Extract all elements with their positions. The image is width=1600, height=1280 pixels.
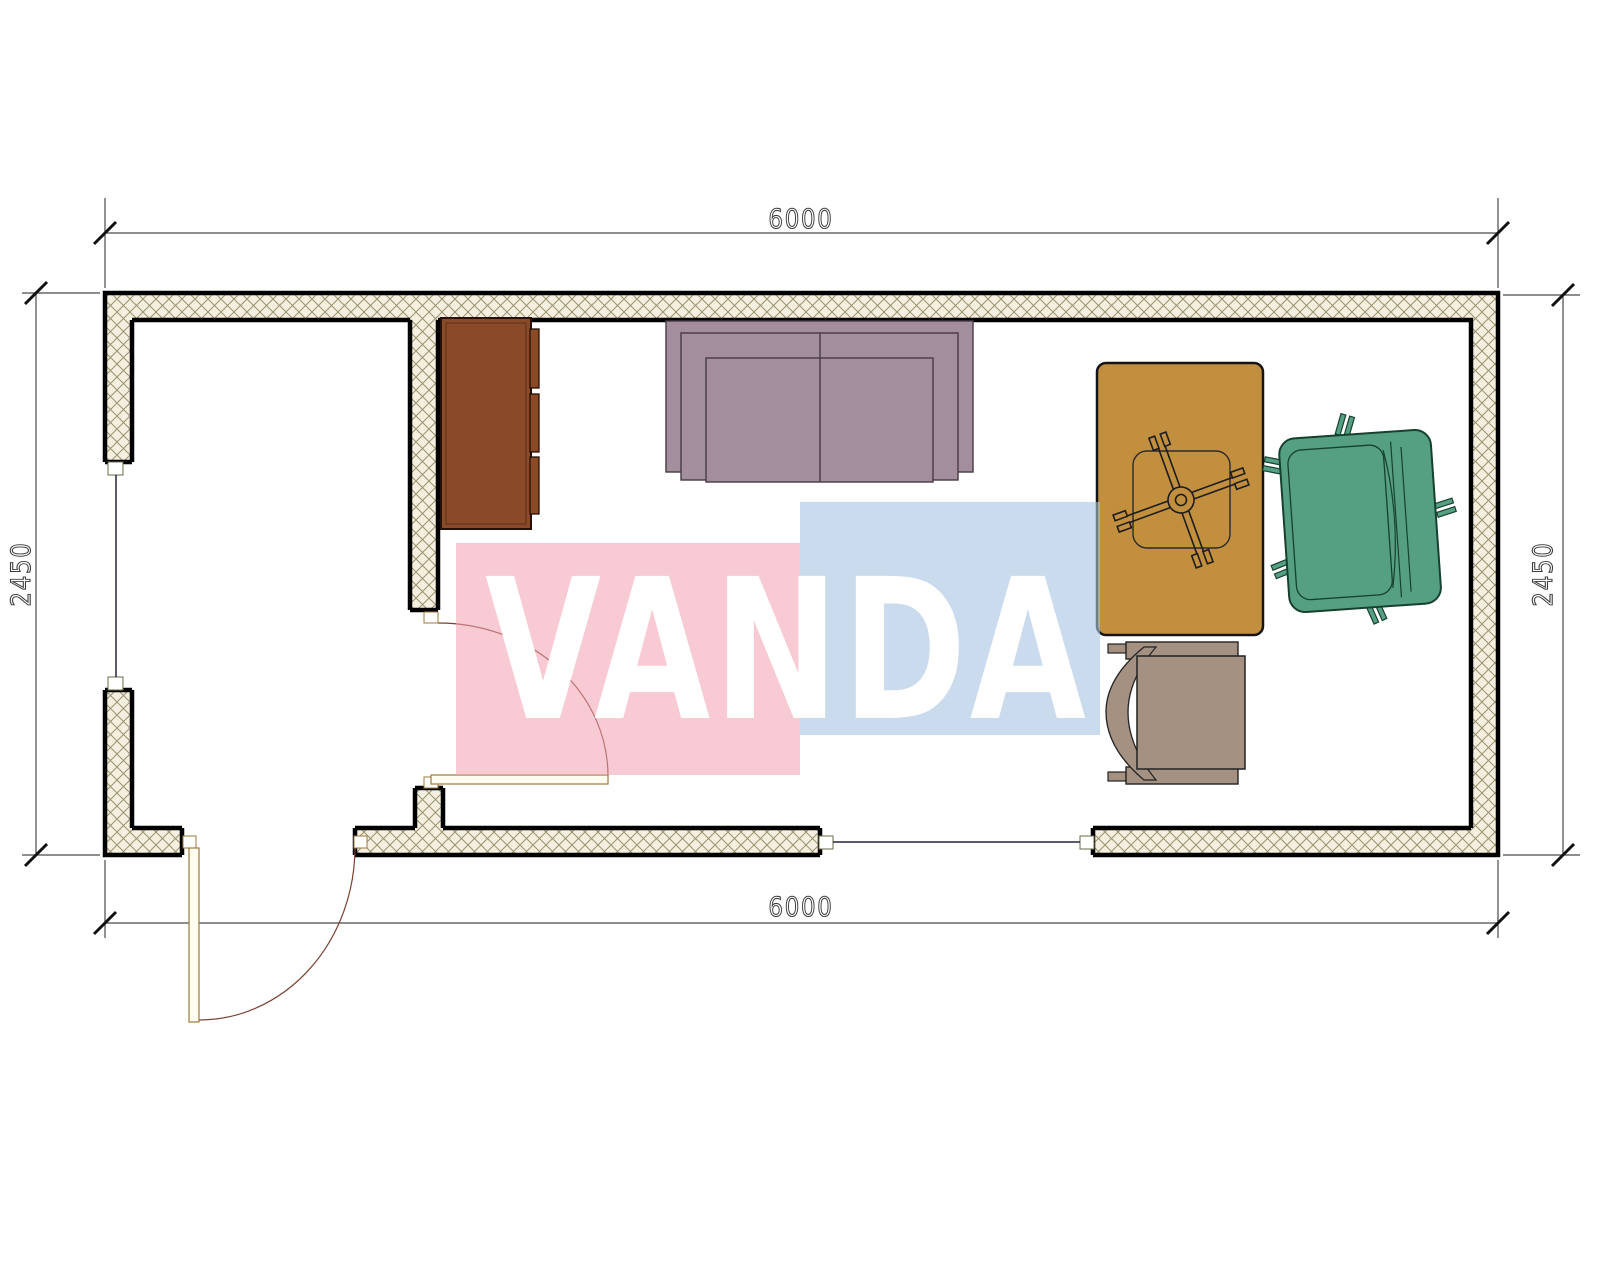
dimension-left: 2450 xyxy=(5,282,100,866)
door-leaf xyxy=(189,848,199,1022)
chair-seat xyxy=(1137,656,1245,769)
dimension-right: 2450 xyxy=(1503,284,1580,866)
chair-arm-stub xyxy=(1108,772,1128,781)
dimension-label-bottom: 6000 xyxy=(768,891,833,922)
wall-left-bottom xyxy=(105,690,132,855)
window-end-box xyxy=(1080,836,1094,849)
door-jamb xyxy=(183,836,196,848)
door-jamb xyxy=(424,612,438,623)
door-leaf xyxy=(431,775,608,784)
wall-stub xyxy=(415,788,443,828)
chair-arm-stub xyxy=(1108,644,1128,653)
cabinet-drawer-tab xyxy=(530,394,539,452)
window-left xyxy=(108,462,123,690)
side-chair xyxy=(1106,642,1245,784)
dimension-label-top: 6000 xyxy=(768,203,833,234)
wall-left-top xyxy=(105,293,132,462)
cabinet-drawer-tab xyxy=(530,457,539,514)
wall-partition xyxy=(410,320,438,610)
window-end-box xyxy=(819,836,833,849)
watermark-text: VANDA xyxy=(485,538,1089,765)
floor-plan: 6000 6000 2450 2450 xyxy=(0,0,1600,1280)
sofa xyxy=(666,321,973,482)
window-bottom xyxy=(819,836,1094,849)
dimension-bottom: 6000 xyxy=(94,860,1509,938)
wall-bottom-right xyxy=(1093,828,1498,855)
floor-plan-svg: 6000 6000 2450 2450 xyxy=(0,0,1600,1280)
watermark: VANDA xyxy=(456,502,1100,775)
window-end-box xyxy=(108,462,123,475)
window-end-box xyxy=(108,677,123,690)
cabinet xyxy=(441,318,539,529)
desk xyxy=(1093,363,1270,635)
cabinet-body xyxy=(441,318,531,529)
dimension-label-left: 2450 xyxy=(5,541,36,606)
dimension-label-right: 2450 xyxy=(1527,541,1558,606)
door-exterior xyxy=(183,836,367,1022)
cabinet-drawer-tab xyxy=(530,329,539,388)
dimension-top: 6000 xyxy=(94,198,1509,288)
door-swing-arc xyxy=(199,847,355,1020)
door-jamb xyxy=(354,836,367,848)
wall-right xyxy=(1471,320,1498,828)
desk-top xyxy=(1097,363,1263,635)
armchair-body xyxy=(1278,429,1442,613)
wall-bottom-middle xyxy=(355,828,820,855)
armchair xyxy=(1259,406,1464,631)
wall-top xyxy=(105,293,1498,320)
